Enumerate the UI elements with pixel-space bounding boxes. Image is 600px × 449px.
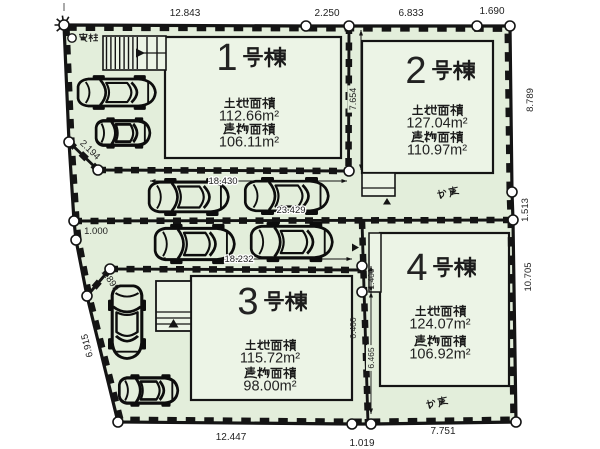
svg-text:23.429: 23.429 — [276, 205, 305, 216]
svg-text:12.447: 12.447 — [216, 432, 247, 443]
svg-text:2.250: 2.250 — [314, 8, 339, 19]
svg-text:2: 2 — [405, 50, 426, 92]
svg-text:18.430: 18.430 — [208, 176, 237, 187]
svg-text:6.833: 6.833 — [398, 8, 423, 19]
svg-text:7.751: 7.751 — [430, 426, 455, 437]
svg-text:3: 3 — [237, 281, 258, 323]
svg-text:1.513: 1.513 — [520, 198, 531, 222]
svg-text:1.400: 1.400 — [366, 268, 376, 290]
svg-text:1.690: 1.690 — [479, 6, 504, 17]
svg-text:18.232: 18.232 — [224, 254, 253, 265]
svg-text:1.000: 1.000 — [84, 226, 108, 237]
svg-text:124.07m²: 124.07m² — [409, 316, 470, 332]
svg-text:6.465: 6.465 — [366, 347, 376, 369]
svg-text:106.92m²: 106.92m² — [409, 346, 470, 362]
svg-text:110.97m²: 110.97m² — [407, 142, 467, 158]
svg-text:0.400: 0.400 — [348, 317, 358, 339]
svg-text:112.66m²: 112.66m² — [219, 108, 279, 124]
svg-text:98.00m²: 98.00m² — [243, 378, 296, 394]
svg-text:10.705: 10.705 — [523, 262, 534, 291]
svg-text:127.04m²: 127.04m² — [406, 115, 467, 131]
svg-text:106.11m²: 106.11m² — [219, 134, 279, 150]
svg-text:115.72m²: 115.72m² — [240, 350, 300, 366]
svg-text:8.789: 8.789 — [525, 88, 536, 112]
svg-text:12.843: 12.843 — [170, 8, 201, 19]
svg-text:7.654: 7.654 — [348, 88, 358, 111]
svg-text:1.019: 1.019 — [349, 438, 374, 449]
svg-text:6.915: 6.915 — [79, 333, 95, 359]
svg-text:4: 4 — [406, 247, 427, 289]
svg-text:1: 1 — [216, 37, 237, 79]
